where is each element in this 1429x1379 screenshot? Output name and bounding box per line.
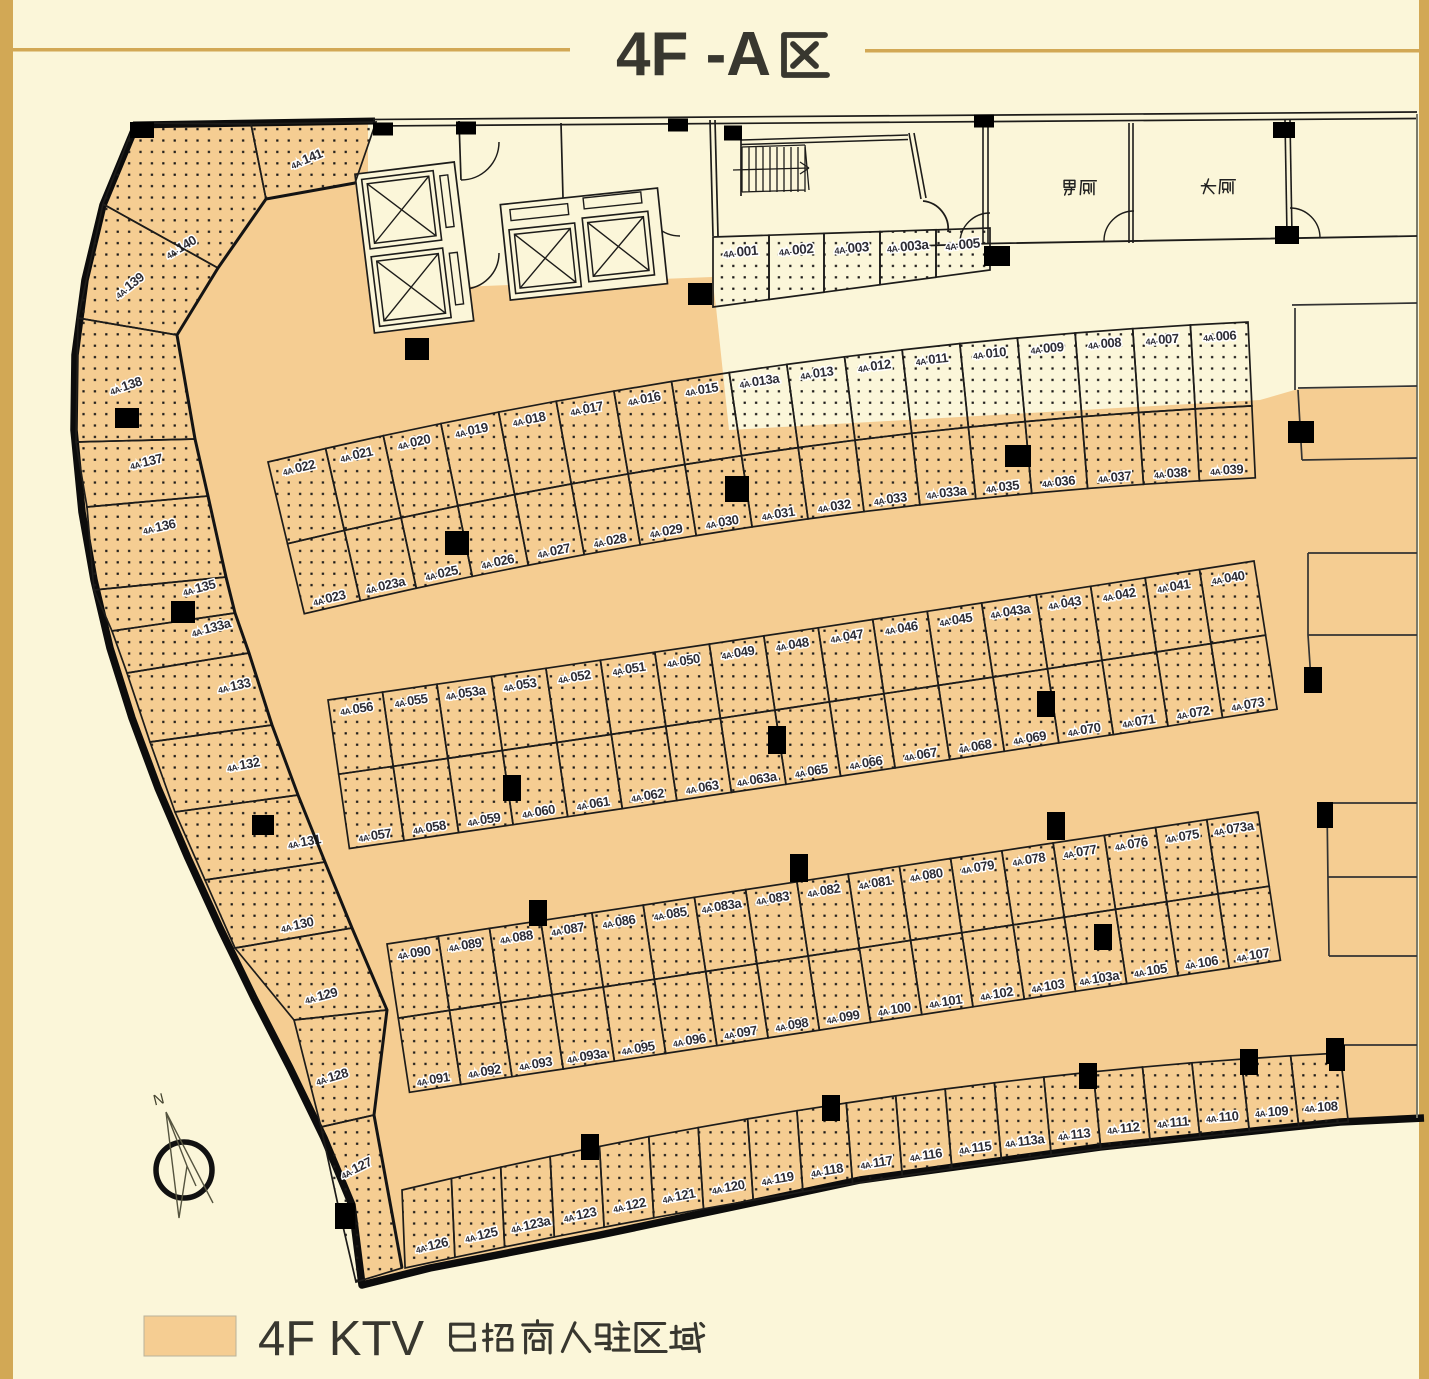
svg-text:4F KTV: 4F KTV xyxy=(258,1312,424,1366)
svg-text:4F -A: 4F -A xyxy=(616,20,771,89)
